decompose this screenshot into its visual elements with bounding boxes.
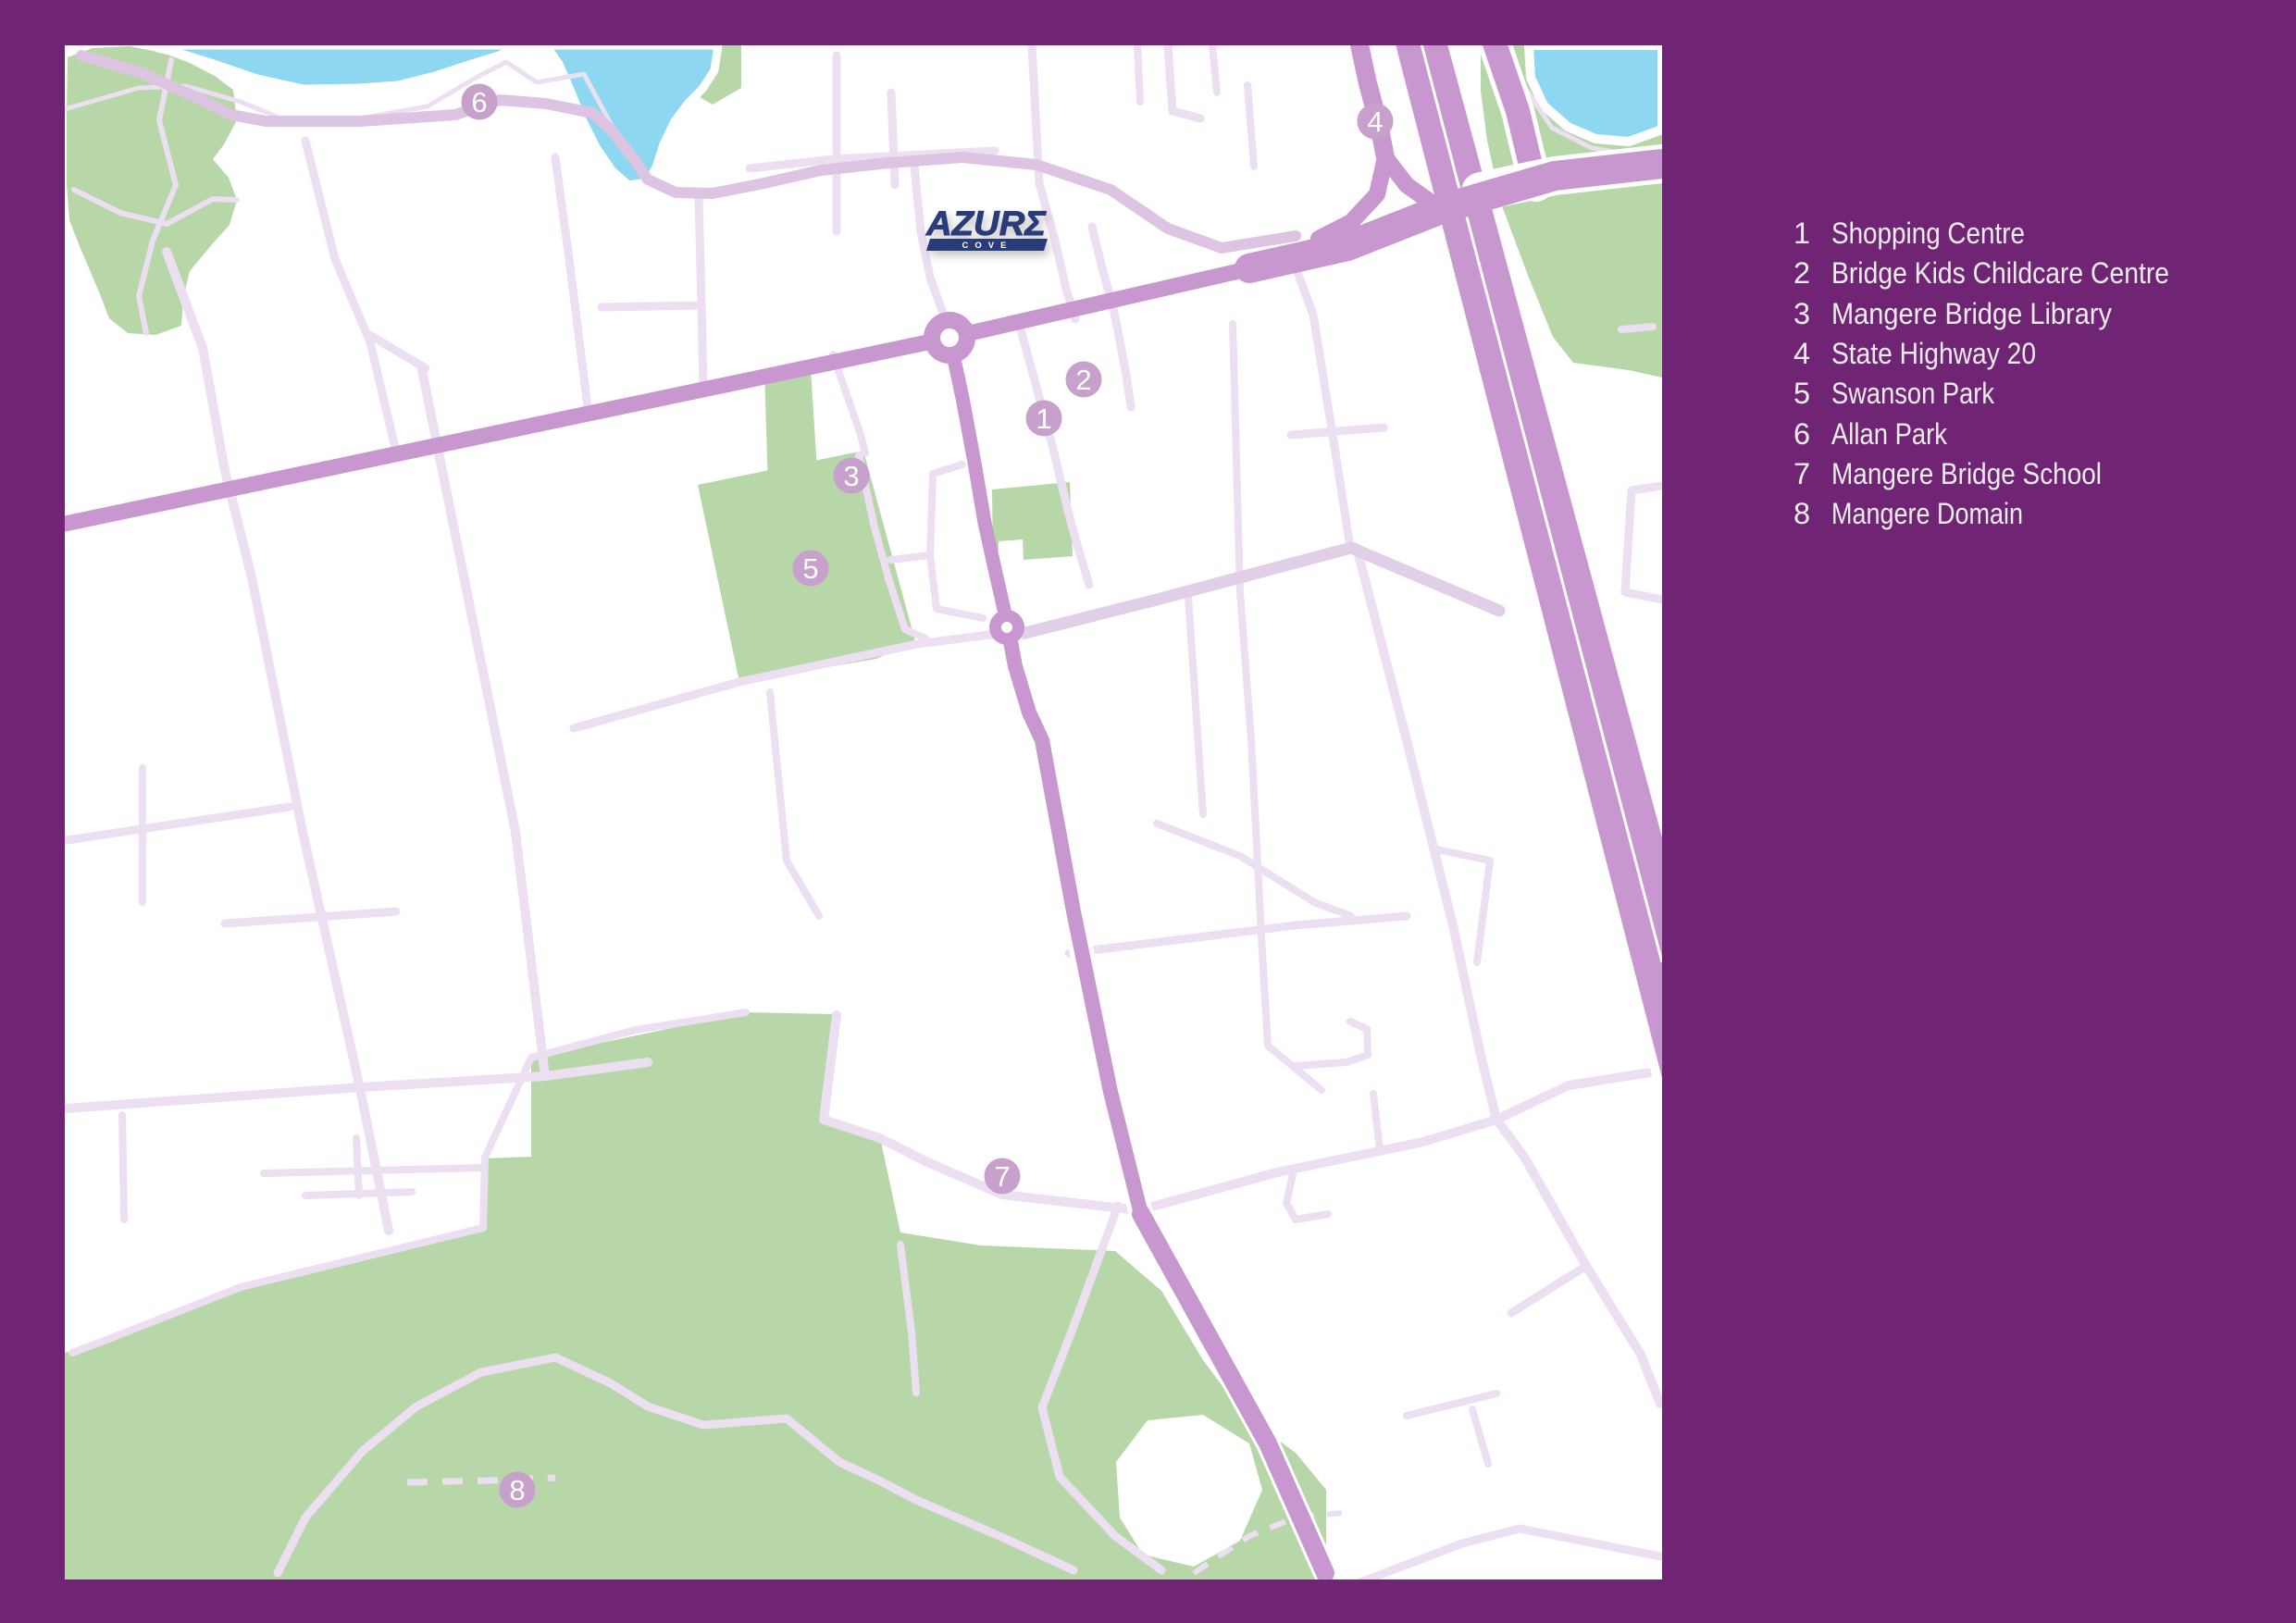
- svg-text:5: 5: [1793, 377, 1810, 410]
- svg-text:7: 7: [994, 1160, 1010, 1193]
- svg-text:1: 1: [1793, 217, 1810, 250]
- svg-text:State Highway 20: State Highway 20: [1831, 337, 2036, 370]
- svg-text:4: 4: [1793, 337, 1810, 370]
- svg-text:Allan Park: Allan Park: [1831, 417, 1948, 451]
- svg-text:5: 5: [802, 552, 818, 585]
- svg-text:3: 3: [1793, 297, 1810, 330]
- svg-text:Swanson Park: Swanson Park: [1831, 377, 1995, 410]
- svg-text:Shopping Centre: Shopping Centre: [1831, 217, 2025, 250]
- svg-text:4: 4: [1367, 105, 1383, 138]
- svg-text:Mangere Bridge Library: Mangere Bridge Library: [1831, 297, 2113, 330]
- svg-text:8: 8: [509, 1474, 525, 1506]
- svg-text:7: 7: [1793, 457, 1810, 490]
- svg-text:AZURΣ: AZURΣ: [925, 204, 1047, 242]
- svg-text:6: 6: [471, 86, 487, 118]
- svg-text:2: 2: [1075, 364, 1091, 396]
- svg-text:3: 3: [843, 460, 859, 492]
- svg-text:Bridge Kids Childcare Centre: Bridge Kids Childcare Centre: [1831, 256, 2169, 290]
- svg-text:1: 1: [1036, 403, 1051, 435]
- svg-text:Mangere Bridge School: Mangere Bridge School: [1831, 457, 2102, 490]
- svg-text:Mangere Domain: Mangere Domain: [1831, 497, 2023, 530]
- svg-text:2: 2: [1793, 256, 1810, 290]
- svg-text:COVE: COVE: [962, 241, 1013, 251]
- svg-text:8: 8: [1793, 497, 1810, 530]
- svg-text:6: 6: [1793, 417, 1810, 451]
